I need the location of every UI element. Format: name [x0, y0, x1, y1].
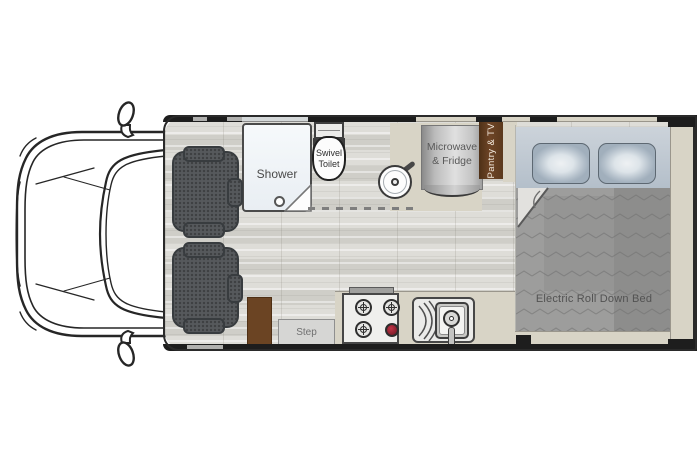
kitchen-sink	[412, 297, 475, 343]
rear-wall-edge	[693, 115, 697, 351]
burner	[383, 299, 400, 316]
partition-dashed-line	[308, 207, 420, 210]
storage-cabinet	[247, 297, 272, 345]
entry-side-wall	[163, 344, 697, 351]
round-sink	[378, 165, 412, 199]
toilet-label: Swivel Toilet	[314, 148, 344, 168]
rear-wall-corner	[668, 339, 697, 351]
burner	[355, 299, 372, 316]
shower-label: Shower	[244, 167, 310, 181]
pillow-left	[532, 143, 590, 184]
step-label: Step	[296, 327, 317, 338]
rear-wall	[670, 117, 694, 349]
blanket-fold	[516, 186, 556, 236]
window-segment	[242, 116, 308, 122]
electric-roll-down-bed: Electric Roll Down Bed	[515, 125, 674, 331]
stove	[342, 293, 399, 344]
pantry-tv-label: Pantry & TV	[486, 123, 497, 178]
toilet-bowl: Swivel Toilet	[312, 136, 346, 181]
wall-segment	[530, 115, 557, 122]
wall-segment	[502, 116, 657, 122]
bed-label: Electric Roll Down Bed	[516, 293, 672, 305]
under-bed-wall-band	[515, 331, 672, 345]
sink-faucet-disc	[443, 310, 460, 327]
bed-head-panel	[516, 127, 672, 190]
rear-wall-corner	[668, 115, 697, 127]
van-cab-graphic	[6, 98, 178, 370]
rv-floorplan-image: Shower Swivel Toilet Microwave & Fridge	[0, 0, 700, 467]
wall-segment	[193, 116, 207, 121]
pillow-right	[598, 143, 656, 184]
wall-segment	[227, 116, 242, 121]
burner	[355, 321, 372, 338]
microwave-fridge-cabinet: Microwave & Fridge	[421, 125, 483, 190]
entry-step: Step	[278, 319, 335, 346]
burner-knob-red	[385, 323, 399, 337]
floorplan-body: Shower Swivel Toilet Microwave & Fridge	[163, 115, 697, 351]
wall-tick	[516, 335, 531, 344]
wall-segment	[187, 345, 223, 350]
shower-area: Shower	[242, 123, 312, 212]
microwave-fridge-label: Microwave & Fridge	[422, 141, 482, 168]
pantry-tv-cabinet: Pantry & TV	[479, 122, 503, 179]
wall-segment	[416, 116, 476, 122]
